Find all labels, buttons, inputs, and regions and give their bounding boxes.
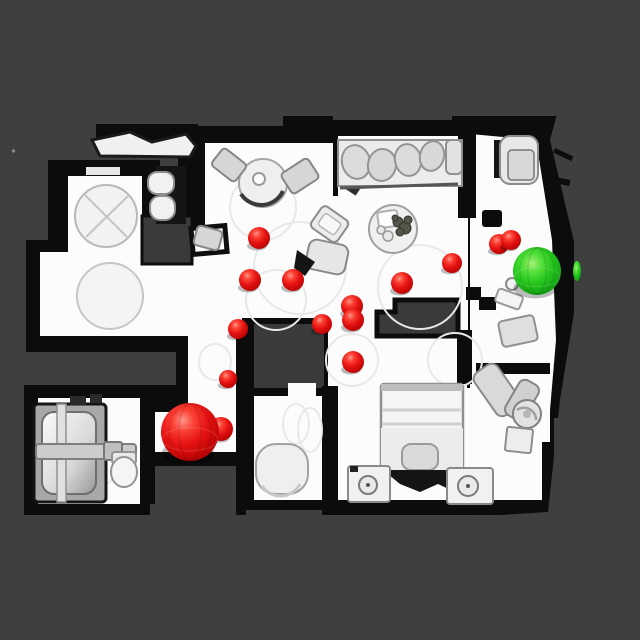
storage-cube — [505, 427, 533, 454]
waypoint-marker — [228, 319, 248, 339]
round-table-1 — [75, 185, 137, 247]
nightstand-left — [348, 466, 390, 502]
hall-cabinet — [494, 136, 538, 184]
toilet — [111, 452, 137, 487]
round-table-2 — [77, 263, 143, 329]
waypoint-marker — [239, 269, 261, 291]
stray-mesh-speck — [12, 149, 15, 152]
waypoint-marker — [342, 351, 364, 373]
topdown-3d-scan-viewport[interactable] — [0, 0, 640, 640]
goal-marker-sliver — [573, 261, 581, 281]
nightstand-right — [447, 468, 493, 504]
sink-fixture-1 — [70, 396, 86, 405]
waypoint-marker — [391, 272, 413, 294]
waypoint-marker — [342, 309, 364, 331]
waypoint-marker — [312, 314, 332, 334]
couch — [338, 138, 462, 188]
scan-viewer-stage — [0, 0, 640, 640]
speaker-object-2 — [150, 196, 175, 220]
waypoint-marker — [442, 253, 462, 273]
window-sill — [86, 167, 120, 175]
sink-fixture-2 — [90, 394, 102, 403]
waypoint-marker — [501, 230, 521, 250]
waypoint-marker — [248, 227, 270, 249]
pillow — [402, 444, 438, 470]
small-room-door-gap — [288, 383, 316, 399]
waypoint-marker — [219, 370, 237, 388]
speaker-object-1 — [148, 172, 174, 194]
apartment-floorplan — [24, 110, 592, 532]
coffee-table — [369, 205, 417, 253]
waypoint-marker — [282, 269, 304, 291]
beanbag-chair — [256, 444, 308, 496]
